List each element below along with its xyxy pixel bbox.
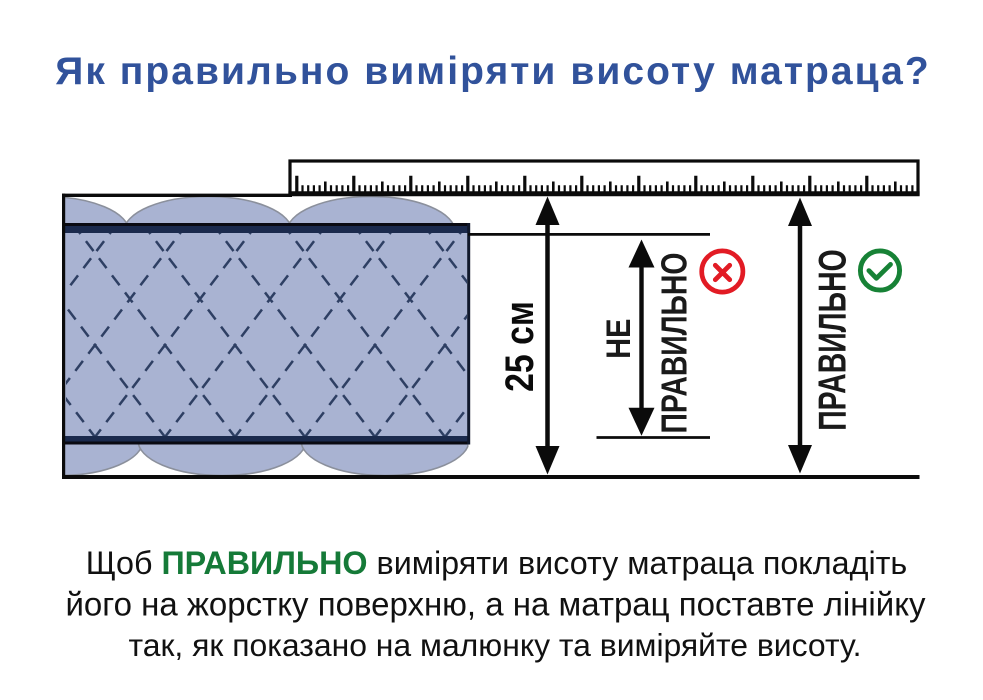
svg-text:25 см: 25 см xyxy=(496,301,541,392)
svg-text:його на жорстку поверхню, а на: його на жорстку поверхню, а на матрац по… xyxy=(65,586,926,623)
svg-text:НЕ: НЕ xyxy=(599,319,638,359)
svg-text:Щоб ПРАВИЛЬНО виміряти висоту: Щоб ПРАВИЛЬНО виміряти висоту матраца по… xyxy=(86,545,908,581)
svg-text:ПРАВИЛЬНО: ПРАВИЛЬНО xyxy=(811,249,854,431)
svg-text:ПРАВИЛЬНО: ПРАВИЛЬНО xyxy=(654,253,694,434)
svg-text:Як правильно виміряти висоту м: Як правильно виміряти висоту матраца? xyxy=(55,50,931,93)
svg-text:так, як показано на малюнку та: так, як показано на малюнку та виміряйте… xyxy=(128,627,861,663)
